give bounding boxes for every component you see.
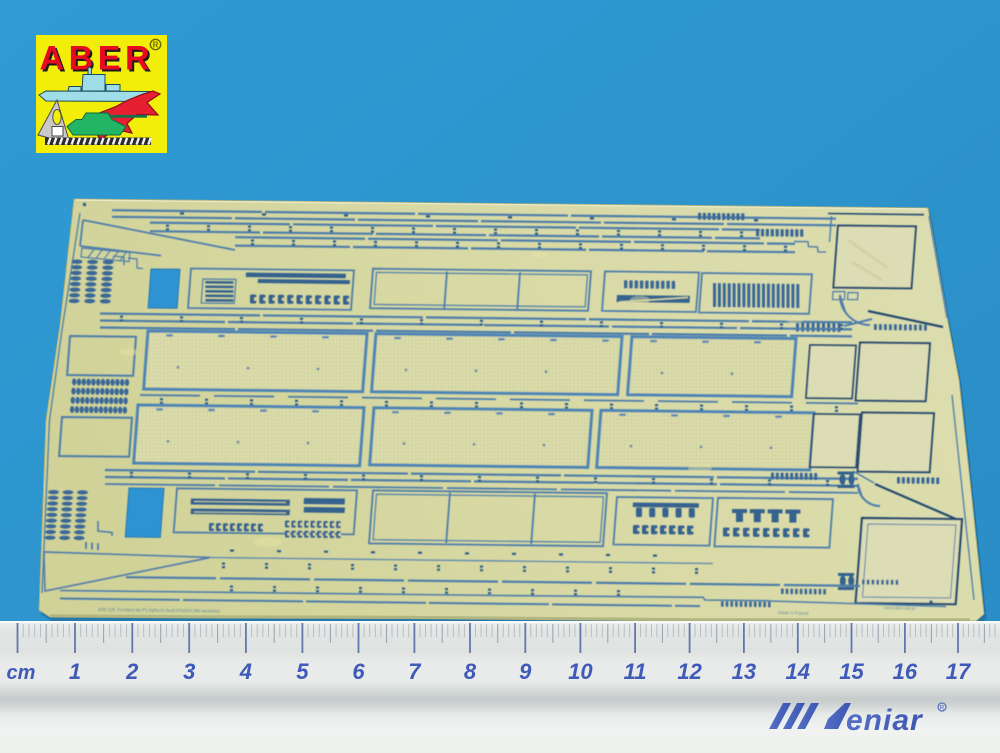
svg-text:3: 3 bbox=[183, 659, 195, 684]
svg-text:15: 15 bbox=[839, 659, 864, 684]
svg-text:7: 7 bbox=[408, 659, 422, 684]
svg-text:2: 2 bbox=[125, 659, 139, 684]
svg-text:cm: cm bbox=[7, 662, 36, 684]
svg-text:9: 9 bbox=[519, 659, 532, 684]
svg-text:12: 12 bbox=[677, 659, 702, 684]
svg-text:eniar: eniar bbox=[846, 704, 924, 737]
svg-text:Made in Poland: Made in Poland bbox=[778, 610, 809, 616]
svg-text:17: 17 bbox=[946, 659, 972, 684]
svg-text:16: 16 bbox=[893, 659, 918, 684]
svg-text:10: 10 bbox=[568, 659, 593, 684]
svg-text:4: 4 bbox=[239, 659, 252, 684]
svg-text:1: 1 bbox=[69, 659, 81, 684]
svg-text:14: 14 bbox=[786, 659, 810, 684]
svg-text:R: R bbox=[940, 705, 945, 712]
svg-text:6: 6 bbox=[352, 659, 365, 684]
svg-text:8: 8 bbox=[464, 659, 477, 684]
svg-text:13: 13 bbox=[732, 659, 756, 684]
svg-text:www.aber.net.pl: www.aber.net.pl bbox=[884, 605, 915, 611]
svg-text:5: 5 bbox=[296, 659, 309, 684]
svg-text:R: R bbox=[153, 41, 159, 50]
svg-text:11: 11 bbox=[624, 659, 647, 684]
